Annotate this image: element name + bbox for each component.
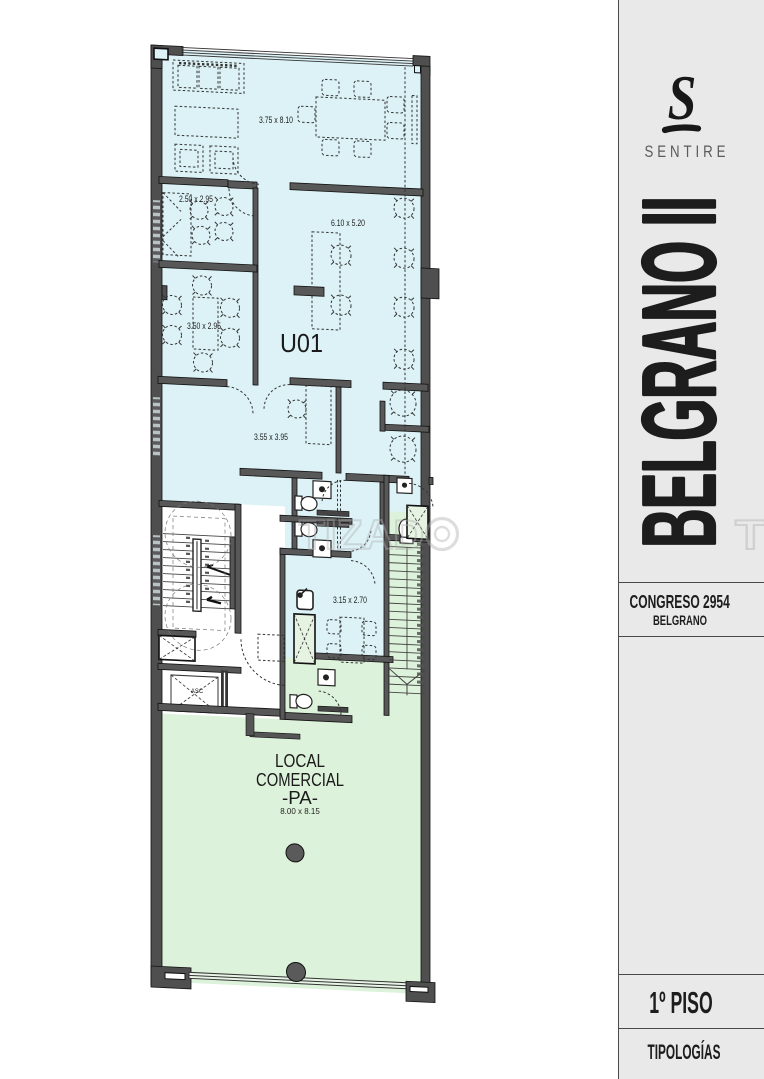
svg-text:3.75 x 8.10: 3.75 x 8.10 [259,115,293,125]
svg-text:8.00 x 8.15: 8.00 x 8.15 [280,807,320,816]
svg-text:S: S [668,64,697,133]
svg-text:3.15 x 2.70: 3.15 x 2.70 [333,595,367,605]
svg-text:-PA-: -PA- [282,788,318,808]
svg-text:2.50 x 2.95: 2.50 x 2.95 [179,194,213,204]
svg-text:LOCAL: LOCAL [275,751,325,771]
svg-text:3.50 x 2.95: 3.50 x 2.95 [187,321,221,331]
svg-text:ASC: ASC [191,689,204,695]
svg-text:6.10 x 5.20: 6.10 x 5.20 [331,218,365,228]
svg-text:3.55 x 3.95: 3.55 x 3.95 [254,432,288,442]
svg-text:U01: U01 [280,330,323,358]
svg-text:COMERCIAL: COMERCIAL [256,770,344,790]
